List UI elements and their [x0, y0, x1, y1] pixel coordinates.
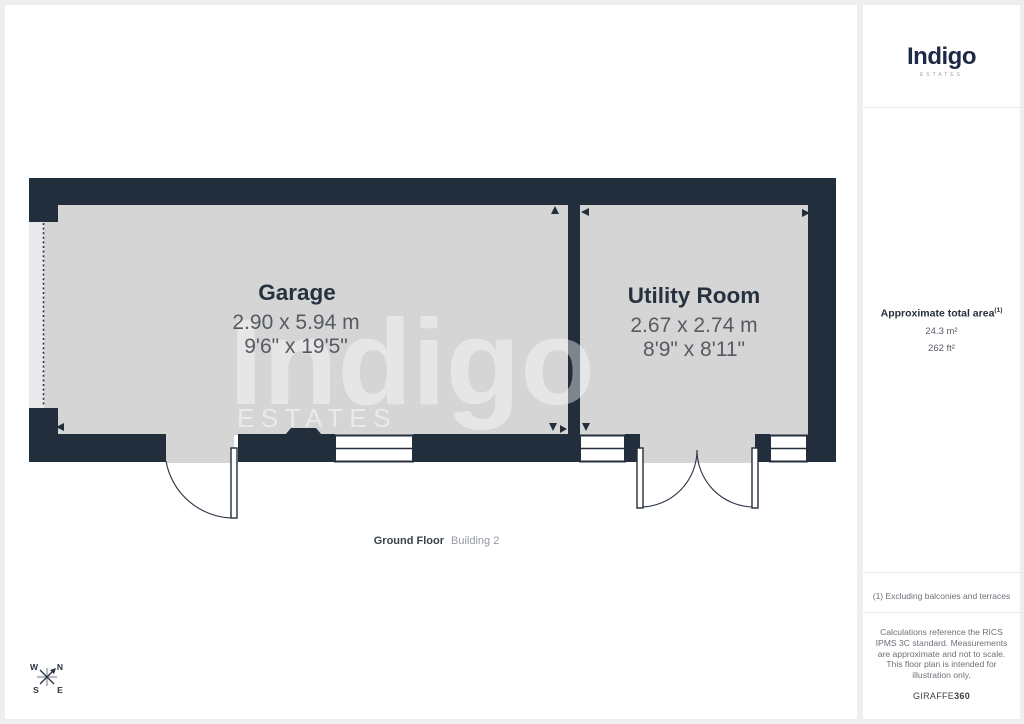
- wall-bottom-3: [413, 434, 580, 462]
- wall-corner-top-left: [29, 178, 58, 222]
- sidebar-divider: [863, 107, 1020, 108]
- sidebar-divider: [863, 572, 1020, 573]
- room-dimensions-metric: 2.67 x 2.74 m: [630, 314, 757, 337]
- wall-bottom-1: [58, 434, 166, 462]
- total-area-title-text: Approximate total area: [881, 308, 995, 320]
- room-dimensions-metric: 2.90 x 5.94 m: [232, 311, 359, 334]
- total-area-metric: 24.3 m²: [863, 326, 1020, 337]
- total-area-imperial: 262 ft²: [863, 343, 1020, 354]
- utility-window-right: [770, 436, 807, 462]
- utility-door-leaf-right: [752, 448, 758, 508]
- utility-label-group: Utility Room 2.67 x 2.74 m 8'9" x 8'11": [628, 283, 761, 361]
- room-dimensions-imperial: 8'9" x 8'11": [643, 338, 745, 361]
- disclaimer-text: Calculations reference the RICS IPMS 3C …: [863, 627, 1020, 681]
- provider-suffix: 360: [954, 691, 970, 701]
- wall-corner-bottom-left: [29, 408, 58, 462]
- garage-door-opening: [29, 222, 44, 408]
- provider-logo: GIRAFFE360: [863, 691, 1020, 701]
- floor-caption: Ground Floor Building 2: [374, 535, 500, 547]
- room-dimensions-imperial: 9'6" x 19'5": [244, 335, 348, 358]
- wall-bottom-2: [238, 434, 335, 462]
- total-area-title: Approximate total area(1): [863, 307, 1020, 320]
- garage-window: [335, 436, 413, 462]
- brand-logo: Indigo ESTATES: [863, 43, 1020, 78]
- floorplan-panel: Indigo ESTATES Garage 2.90 x 5.94 m 9'6"…: [5, 5, 857, 719]
- total-area-footnote-marker: (1): [994, 307, 1002, 314]
- area-footnote: (1) Excluding balconies and terraces: [863, 591, 1020, 601]
- room-name: Garage: [258, 280, 336, 305]
- brand-logo-name: Indigo: [863, 43, 1020, 71]
- garage-doorway: [166, 434, 234, 463]
- garage-door-swing-arc: [166, 461, 233, 518]
- wall-right: [808, 178, 836, 462]
- brand-logo-sub: ESTATES: [863, 72, 1020, 78]
- info-sidebar: Indigo ESTATES Approximate total area(1)…: [863, 5, 1020, 719]
- wall-top: [29, 178, 836, 205]
- compass: W N S E: [30, 662, 63, 695]
- room-name: Utility Room: [628, 283, 761, 308]
- compass-east: E: [57, 685, 63, 695]
- compass-south: S: [33, 685, 39, 695]
- total-area-block: Approximate total area(1) 24.3 m² 262 ft…: [863, 307, 1020, 354]
- watermark-sub: ESTATES: [237, 403, 397, 433]
- utility-door-leaf-left: [637, 448, 643, 508]
- compass-west: W: [30, 662, 39, 672]
- utility-window-left: [580, 436, 625, 462]
- provider-name: GIRAFFE: [913, 691, 954, 701]
- building-label: Building 2: [451, 535, 499, 547]
- garage-door-leaf: [231, 448, 237, 518]
- floor-label: Ground Floor: [374, 535, 445, 547]
- sidebar-divider: [863, 612, 1020, 613]
- compass-north: N: [57, 662, 63, 672]
